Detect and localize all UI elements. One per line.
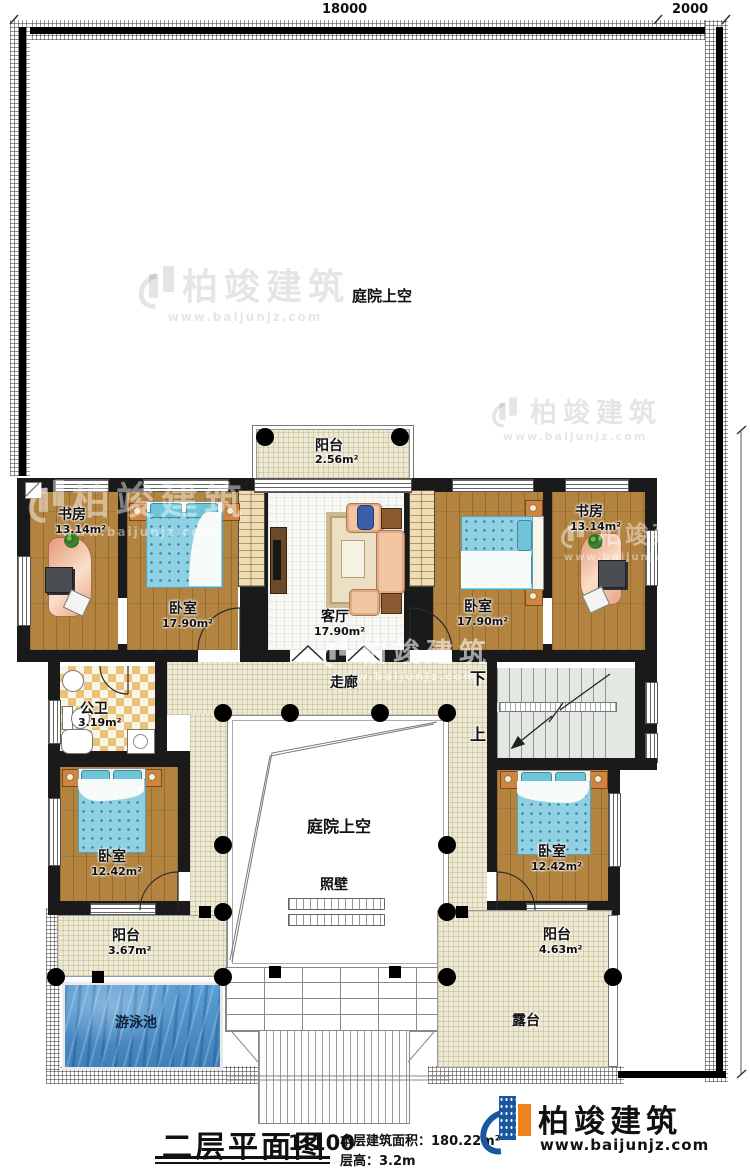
- wardrobe-bedroom-ne: [409, 490, 435, 587]
- watermark: 柏竣建筑 www.baijunjz.com: [488, 390, 662, 443]
- column: [214, 704, 232, 722]
- window-stair-1: [645, 682, 658, 724]
- floor-area-label: 本层建筑面积：: [340, 1134, 431, 1149]
- title-underline-2: [155, 1162, 330, 1164]
- window-study-left: [55, 479, 109, 492]
- window-bedroom-nw: [143, 479, 229, 492]
- room-area-balcony-sw: 3.67m²: [108, 945, 151, 957]
- room-label-corridor: 走廊: [330, 676, 358, 691]
- nightstand: [144, 769, 162, 787]
- screen-wall-bar: [288, 914, 385, 926]
- watermark-url: www.baijunjz.com: [503, 430, 647, 443]
- stair-railing: [499, 702, 617, 712]
- column-square: [456, 906, 468, 918]
- column-square: [92, 971, 104, 983]
- sink-icon: [62, 670, 84, 692]
- pillow: [517, 520, 532, 551]
- stair-wall-west: [487, 662, 497, 770]
- watermark-url: www.baijunjz.com: [168, 310, 323, 324]
- fence-west-wall: [19, 27, 26, 476]
- terrace-label: 露台: [512, 1014, 540, 1029]
- room-area-living: 17.90m²: [314, 626, 365, 638]
- brand-url: www.baijunjz.com: [540, 1136, 709, 1154]
- door-opening-living-1: [290, 650, 326, 662]
- room-area-balcony-north: 2.56m²: [315, 454, 358, 466]
- coffee-table: [341, 540, 365, 578]
- fence-south-right-wall: [618, 1071, 726, 1078]
- column-square: [389, 966, 401, 978]
- room-label-bedroom-ne: 卧室: [464, 600, 492, 615]
- floor-plan-canvas: 18000 2000 18500: [0, 0, 750, 1169]
- armchair: [349, 589, 380, 616]
- column: [391, 428, 409, 446]
- floor-area-line: 本层建筑面积：180.22m²: [340, 1130, 500, 1149]
- pillow: [150, 503, 182, 518]
- terrace-floor: [437, 910, 612, 1068]
- column: [47, 968, 65, 986]
- wall-below-wardrobe-left: [240, 583, 263, 650]
- window-bathroom: [48, 700, 61, 744]
- fence-south-right: [428, 1066, 624, 1084]
- bathroom-wall-east: [155, 662, 167, 754]
- column: [214, 968, 232, 986]
- stair-treads-upper: [497, 668, 613, 703]
- floor-height-label: 层高：: [340, 1154, 379, 1169]
- side-table: [381, 508, 402, 529]
- side-table: [381, 593, 402, 614]
- fence-north-wall: [14, 27, 726, 34]
- wall-top-row-south: [17, 650, 657, 662]
- courtyard-void: [227, 715, 449, 969]
- pool-label: 游泳池: [115, 1016, 157, 1031]
- column-square: [269, 966, 281, 978]
- floor-height-line: 层高：3.2m: [340, 1150, 416, 1169]
- nightstand: [590, 771, 608, 789]
- door-opening-living-2: [346, 650, 382, 662]
- wardrobe-bedroom-nw: [238, 490, 265, 587]
- column-square: [199, 906, 211, 918]
- front-yard-label: 庭院上空: [352, 288, 412, 305]
- column: [214, 903, 232, 921]
- column: [256, 428, 274, 446]
- bed: [60, 767, 162, 855]
- screen-wall-bar: [288, 898, 385, 910]
- terrace-railing: [608, 915, 618, 1067]
- nightstand: [525, 588, 543, 606]
- computer-monitor-icon: [45, 567, 73, 593]
- room-label-balcony-se: 阳台: [543, 928, 571, 943]
- bathtub-icon: [61, 729, 93, 754]
- fence-east-wall: [716, 27, 723, 1077]
- room-label-study-right: 书房: [575, 505, 603, 520]
- column: [438, 836, 456, 854]
- watermark-logo-icon: [140, 264, 174, 304]
- room-label-living: 客厅: [321, 610, 349, 625]
- sofa: [376, 530, 405, 594]
- bed: [127, 500, 240, 592]
- room-area-bedroom-sw: 12.42m²: [91, 866, 142, 878]
- watermark-logo-icon: [493, 396, 517, 424]
- room-label-bedroom-nw: 卧室: [169, 602, 197, 617]
- room-label-bedroom-sw: 卧室: [98, 850, 126, 865]
- room-area-study-right: 13.14m²: [570, 521, 621, 533]
- paved-court: [225, 967, 454, 1032]
- stairs-up-label: 上: [470, 726, 486, 744]
- corner-note-box: [25, 482, 42, 499]
- room-area-study-left: 13.14m²: [55, 524, 106, 536]
- dimension-top-right: 2000: [672, 2, 708, 17]
- courtyard-label: 庭院上空: [307, 818, 371, 836]
- brand-name: 柏竣建筑: [538, 1096, 682, 1141]
- floor-height-value: 3.2m: [379, 1154, 416, 1169]
- plant-icon: [588, 534, 603, 549]
- room-area-bathroom: 3.19m²: [78, 717, 121, 729]
- room-area-bedroom-se: 12.42m²: [531, 861, 582, 873]
- logo-building-blue: [499, 1096, 516, 1140]
- bed-sheet: [461, 551, 531, 588]
- watermark-text: 柏竣建筑: [530, 391, 662, 430]
- window-study-right-east: [645, 530, 658, 586]
- bed: [497, 768, 608, 856]
- column: [281, 704, 299, 722]
- nightstand: [222, 503, 240, 521]
- window-bedroom-ne: [452, 479, 534, 492]
- column: [438, 968, 456, 986]
- bed: [455, 496, 545, 608]
- door-opening-bedroom-nw: [198, 650, 240, 662]
- window-bedroom-se-east: [608, 793, 621, 867]
- entry-steps: [258, 1030, 410, 1124]
- door-opening-study-left: [118, 598, 127, 644]
- window-study-left-west: [17, 556, 31, 626]
- watermark-text: 柏竣建筑: [182, 258, 350, 310]
- washing-machine-door: [133, 734, 148, 749]
- window-bedroom-sw-south: [90, 903, 156, 915]
- column: [438, 704, 456, 722]
- person-figure: [357, 505, 374, 530]
- balcony-door-slider: [254, 478, 412, 493]
- room-area-balcony-se: 4.63m²: [539, 944, 582, 956]
- door-opening-bedroom-ne: [410, 650, 452, 662]
- room-area-bedroom-nw: 17.90m²: [162, 618, 213, 630]
- nightstand: [500, 771, 518, 789]
- room-label-study-left: 书房: [58, 508, 86, 523]
- logo-building-orange: [518, 1104, 531, 1136]
- computer-monitor-icon: [598, 560, 626, 588]
- title-underline: [155, 1156, 330, 1159]
- room-label-bedroom-se: 卧室: [538, 845, 566, 860]
- watermark: 柏竣建筑 www.baijunjz.com: [140, 258, 350, 324]
- stairs-down-label: 下: [470, 670, 486, 688]
- room-label-balcony-sw: 阳台: [112, 929, 140, 944]
- column: [438, 903, 456, 921]
- column: [371, 704, 389, 722]
- room-area-bedroom-ne: 17.90m²: [457, 616, 508, 628]
- screen-wall-label: 照壁: [320, 878, 348, 893]
- tv-icon: [273, 540, 281, 580]
- nightstand: [129, 503, 147, 521]
- window-study-right: [565, 479, 629, 492]
- dimension-top-width: 18000: [322, 2, 367, 17]
- stair-treads-lower: [497, 712, 613, 758]
- wall-below-wardrobe-right: [409, 585, 433, 650]
- brand-logo-icon: [482, 1096, 534, 1154]
- column: [214, 836, 232, 854]
- column: [604, 968, 622, 986]
